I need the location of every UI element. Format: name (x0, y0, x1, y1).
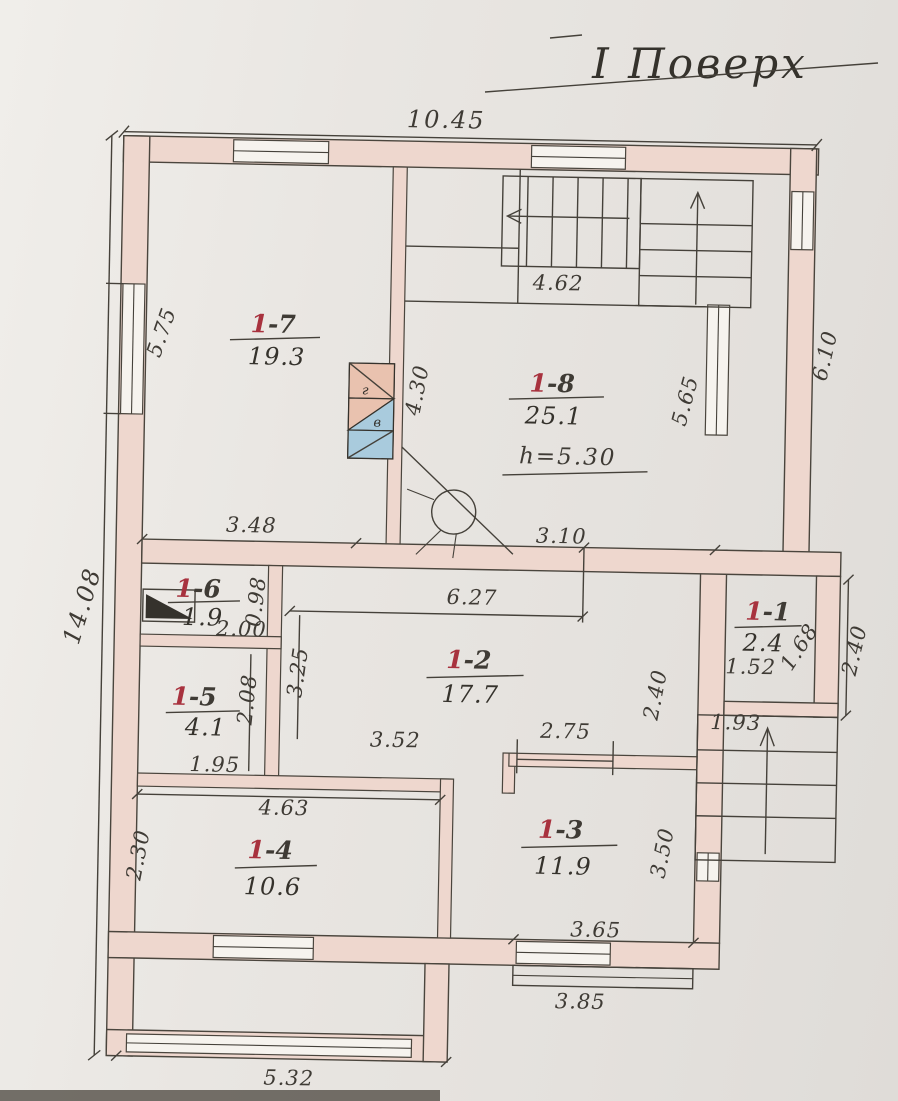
stair-flight-right (639, 179, 753, 308)
room-number-red: 1 (175, 574, 193, 603)
corner-fixture-1-8 (400, 447, 515, 559)
dim-room2-bottom-right: 2.75 (539, 719, 591, 744)
room-height-note: h=5.30 (519, 443, 617, 471)
room-number-red: 1 (529, 368, 547, 397)
window-bottom-right (516, 941, 610, 965)
svg-text:1-4: 1-4 (247, 835, 293, 865)
wall-between-1-7-and-1-8 (386, 167, 407, 544)
room-number-rest: -8 (547, 369, 575, 399)
svg-text:1-6: 1-6 (175, 574, 221, 604)
room-area: 11.9 (534, 852, 592, 881)
dim-room2-right: 2.40 (638, 668, 672, 723)
flue-label-top: г (362, 383, 369, 398)
svg-text:1-7: 1-7 (250, 309, 296, 339)
dim-overall-height: 14.08 (57, 564, 107, 647)
room-number-rest: -7 (268, 309, 297, 339)
dim-room3-bottom: 3.65 (570, 917, 621, 942)
dim-room5-height: 2.08 (232, 673, 261, 727)
dim-vestibule-width: 1.52 (725, 654, 776, 679)
room-area: 10.6 (243, 872, 301, 901)
stair-flight-left (501, 176, 641, 269)
dim-hall-top-right: 3.10 (536, 524, 587, 549)
dim-room2-width: 6.27 (446, 585, 497, 610)
flue-label-mid: в (373, 415, 381, 430)
dim-stair-hall: 4.62 (531, 271, 583, 296)
photo-edge-shadow (0, 1090, 440, 1101)
room-1-4-label: 1-4 10.6 (234, 835, 317, 902)
dim-room2-left: 3.25 (282, 645, 313, 699)
dim-right-inner: 5.65 (667, 373, 703, 428)
window-right-inner-wall (705, 305, 729, 435)
room-1-2-label: 1-2 17.7 (426, 645, 524, 710)
room-number-rest: -3 (555, 815, 583, 845)
room-1-7-label: 1-7 19.3 (229, 309, 320, 372)
window-right-outer-wall (791, 191, 814, 249)
room-number-red: 1 (446, 645, 464, 674)
room-number-red: 1 (745, 597, 763, 626)
roman-numeral-overline (550, 35, 582, 38)
svg-text:1-3: 1-3 (538, 815, 584, 845)
room-number-red: 1 (247, 835, 265, 864)
room-area: 2.4 (741, 629, 784, 658)
dim-wall-7-8: 4.30 (400, 363, 434, 418)
room-area: 25.1 (524, 401, 583, 430)
dim-vestibule-right: 2.40 (837, 623, 872, 679)
dim-room2-bottom-left: 3.52 (370, 727, 421, 752)
stair-direction-arrow-up (696, 195, 698, 305)
room-area: 17.7 (441, 680, 499, 709)
svg-text:1-1: 1-1 (745, 597, 791, 627)
room-number-rest: -5 (189, 682, 217, 712)
room-number-rest: -6 (193, 574, 221, 604)
scanned-floor-plan-page: І Поверх (0, 0, 898, 1101)
svg-text:1-2: 1-2 (446, 645, 492, 675)
dim-room4-top: 4.63 (257, 795, 309, 820)
exterior-stair-arrow-up (765, 730, 767, 854)
wall-porch-right (423, 964, 449, 1062)
dim-left-upper: 5.75 (142, 304, 181, 360)
wall-bottom-main (108, 932, 719, 970)
window-right-lower-wall (697, 853, 720, 881)
room-1-3-label: 1-3 11.9 (521, 814, 618, 881)
dim-hall-top-left: 3.48 (226, 513, 277, 538)
room-number-red: 1 (538, 815, 556, 844)
wall-mid-horizontal (142, 539, 841, 576)
window-left-wall (121, 284, 145, 414)
room-number-red: 1 (250, 309, 268, 338)
room-number-rest: -4 (265, 835, 293, 865)
wall-vestibule-right (814, 576, 841, 717)
room-number-rest: -1 (762, 597, 790, 627)
room-1-5-label: 1-5 4.1 (165, 682, 240, 742)
room-1-8-label: 1-8 25.1 h=5.30 (502, 368, 649, 478)
room-area: 4.1 (184, 713, 227, 742)
page-title: І Поверх (591, 39, 808, 88)
plan-body: г в (49, 99, 882, 1101)
floor-plan-svg: І Поверх (0, 0, 898, 1101)
dim-overall-width: 10.45 (407, 105, 486, 135)
svg-text:1-5: 1-5 (171, 682, 217, 712)
room-number-red: 1 (171, 682, 189, 711)
porch-step-1-3 (513, 965, 693, 988)
wall-right-lower (693, 550, 727, 943)
window-top-left (233, 140, 328, 164)
wall-between-1-2-and-1-4 (137, 773, 452, 792)
wall-between-1-4-and-1-3 (438, 779, 454, 938)
svg-text:1-8: 1-8 (529, 368, 575, 398)
room-area: 19.3 (248, 342, 306, 371)
dim-room3-right: 3.50 (646, 826, 679, 880)
dim-room5-width: 1.95 (189, 752, 240, 777)
room-number-rest: -2 (463, 645, 491, 675)
dim-step-bottom: 3.85 (555, 989, 606, 1014)
window-top-center (531, 145, 625, 169)
wall-top (123, 136, 818, 175)
flue-block: г в (348, 363, 395, 459)
window-bottom-left (213, 936, 313, 960)
dim-porch-bottom: 5.32 (263, 1066, 314, 1091)
drawing-title: І Поверх (485, 35, 878, 92)
dim-ext-stair: 1.93 (710, 710, 761, 735)
